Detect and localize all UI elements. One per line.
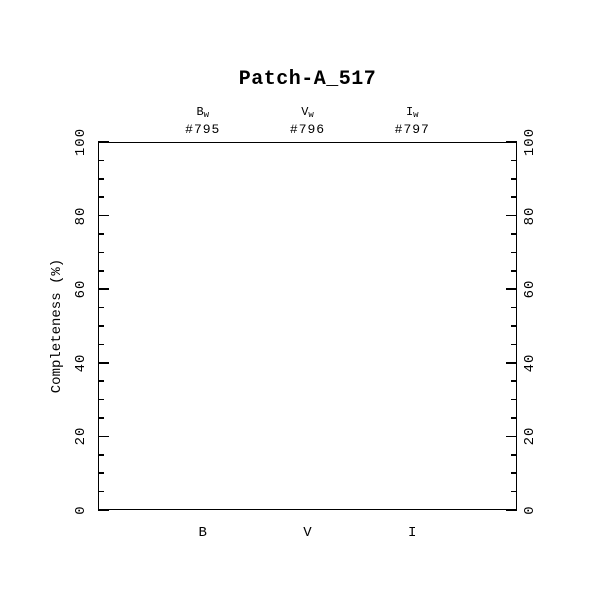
y-major-tick-left: [98, 215, 109, 217]
y-tick-label-left: 20: [73, 416, 89, 456]
y-minor-tick-right: [511, 233, 517, 235]
y-minor-tick-left: [98, 160, 104, 162]
y-minor-tick-right: [511, 417, 517, 419]
y-major-tick-left: [98, 436, 109, 438]
y-minor-tick-right: [511, 491, 517, 493]
filter-subscript: w: [413, 110, 418, 120]
filter-label: Iw: [382, 105, 442, 120]
y-minor-tick-left: [98, 325, 104, 327]
plot-canvas: Patch-A_517 Completeness (%) 00202040406…: [0, 0, 611, 611]
y-tick-label-right: 0: [522, 490, 538, 530]
y-tick-label-left: 60: [73, 269, 89, 309]
y-tick-label-left: 100: [73, 122, 89, 162]
frame-id-label: #795: [173, 122, 233, 137]
y-major-tick-left: [98, 509, 109, 511]
y-minor-tick-left: [98, 252, 104, 254]
y-tick-label-right: 100: [522, 122, 538, 162]
y-minor-tick-left: [98, 307, 104, 309]
y-minor-tick-right: [511, 270, 517, 272]
y-minor-tick-right: [511, 252, 517, 254]
y-minor-tick-left: [98, 380, 104, 382]
y-minor-tick-right: [511, 178, 517, 180]
y-minor-tick-right: [511, 380, 517, 382]
y-major-tick-right: [506, 509, 517, 511]
y-minor-tick-left: [98, 472, 104, 474]
filter-base: B: [196, 105, 203, 119]
y-major-tick-left: [98, 362, 109, 364]
filter-label: Vw: [278, 105, 338, 120]
y-major-tick-right: [506, 436, 517, 438]
x-category-label: B: [183, 525, 223, 541]
x-category-label: I: [392, 525, 432, 541]
y-tick-label-right: 40: [522, 343, 538, 383]
plot-title: Patch-A_517: [98, 68, 517, 94]
y-minor-tick-left: [98, 491, 104, 493]
y-minor-tick-left: [98, 454, 104, 456]
y-tick-label-left: 80: [73, 196, 89, 236]
y-minor-tick-left: [98, 270, 104, 272]
y-minor-tick-right: [511, 196, 517, 198]
y-tick-label-left: 0: [73, 490, 89, 530]
y-minor-tick-right: [511, 325, 517, 327]
y-minor-tick-left: [98, 417, 104, 419]
y-minor-tick-right: [511, 399, 517, 401]
y-tick-label-left: 40: [73, 343, 89, 383]
y-tick-label-right: 60: [522, 269, 538, 309]
y-minor-tick-left: [98, 344, 104, 346]
frame-id-label: #797: [382, 122, 442, 137]
y-major-tick-right: [506, 215, 517, 217]
filter-label: Bw: [173, 105, 233, 120]
y-tick-label-right: 80: [522, 196, 538, 236]
y-minor-tick-left: [98, 178, 104, 180]
y-minor-tick-right: [511, 472, 517, 474]
y-major-tick-left: [98, 288, 109, 290]
y-minor-tick-left: [98, 196, 104, 198]
y-minor-tick-right: [511, 160, 517, 162]
frame-id-label: #796: [278, 122, 338, 137]
y-minor-tick-right: [511, 454, 517, 456]
y-minor-tick-right: [511, 344, 517, 346]
plot-box: [98, 142, 517, 510]
y-axis-label: Completeness (%): [49, 236, 65, 416]
y-major-tick-right: [506, 362, 517, 364]
filter-subscript: w: [204, 110, 209, 120]
y-major-tick-left: [98, 141, 109, 143]
y-minor-tick-left: [98, 233, 104, 235]
y-tick-label-right: 20: [522, 416, 538, 456]
y-major-tick-right: [506, 288, 517, 290]
x-category-label: V: [288, 525, 328, 541]
y-minor-tick-right: [511, 307, 517, 309]
y-major-tick-right: [506, 141, 517, 143]
y-minor-tick-left: [98, 399, 104, 401]
filter-subscript: w: [308, 110, 313, 120]
